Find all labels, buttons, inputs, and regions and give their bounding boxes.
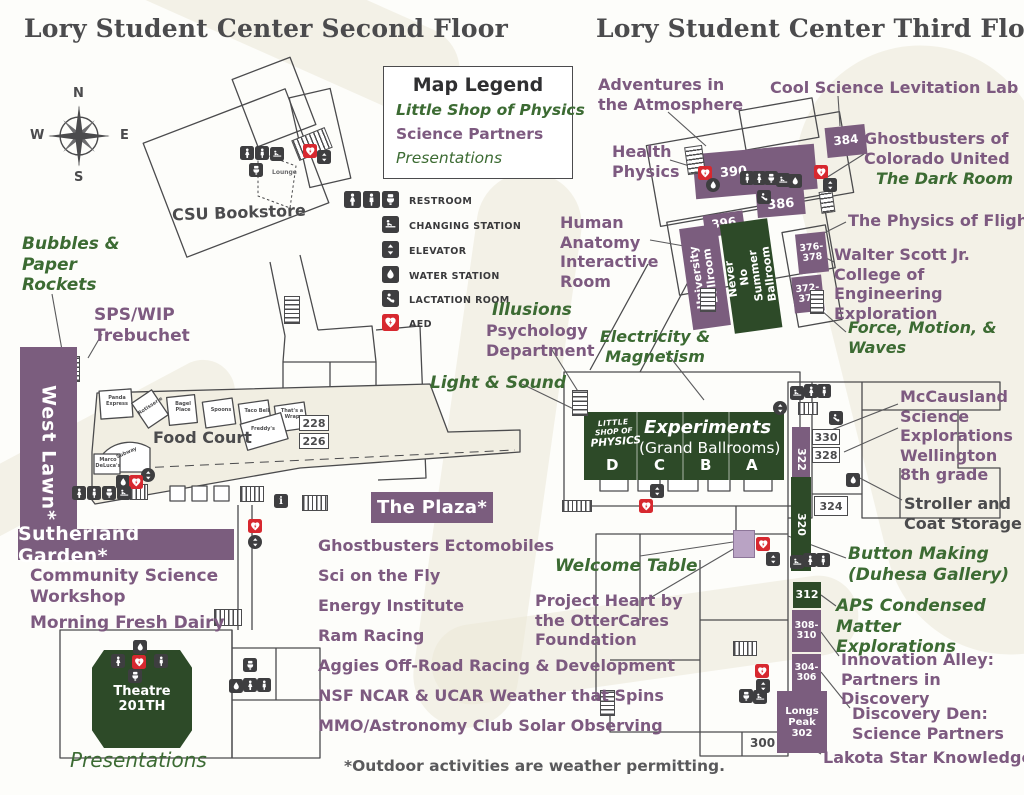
elevator-label: ELEVATOR bbox=[409, 246, 466, 257]
info-desk-icon: i bbox=[274, 494, 288, 508]
man-restroom-icon bbox=[817, 384, 831, 398]
compass-north: N bbox=[73, 86, 84, 101]
stall-thats-a-wrap: That's a Wrap bbox=[280, 409, 304, 421]
restroom-label: RESTROOM bbox=[409, 196, 472, 207]
changing-station-icon bbox=[117, 486, 131, 500]
ballroom-section-a: A bbox=[746, 456, 758, 474]
changing-station-icon bbox=[382, 216, 399, 233]
compass-star-icon bbox=[44, 101, 114, 171]
room-308-310-label: 308-310 bbox=[794, 621, 819, 642]
third-floor-title: Lory Student Center Third Floor bbox=[596, 14, 1024, 43]
elevator-icon bbox=[766, 552, 780, 566]
walter-scott-label: Walter Scott Jr. College of Engineering … bbox=[834, 245, 1024, 323]
welcome-table-block bbox=[733, 530, 755, 558]
mccausland-label: McCausland Science Explorations Wellingt… bbox=[900, 387, 1012, 485]
stairs bbox=[700, 288, 716, 312]
elevator-icon bbox=[650, 484, 664, 498]
second-floor-title: Lory Student Center Second Floor bbox=[24, 14, 508, 43]
lakota-star-label: Lakota Star Knowledge bbox=[823, 748, 1024, 768]
lactation-room-icon bbox=[829, 411, 843, 425]
stairs bbox=[819, 190, 836, 214]
stairs bbox=[284, 296, 300, 324]
water-station-icon bbox=[133, 640, 147, 654]
stall-taco-bell: Taco Bell bbox=[244, 409, 270, 415]
changing-station-icon bbox=[790, 386, 804, 400]
man-restroom-icon bbox=[816, 553, 830, 567]
discovery-den-label: Discovery Den: Science Partners bbox=[852, 704, 1012, 743]
activity-energy-institute: Energy Institute bbox=[318, 596, 464, 616]
ballroom-section-c: C bbox=[654, 456, 665, 474]
light-sound-label: Light & Sound bbox=[430, 373, 566, 394]
stairs bbox=[798, 402, 818, 415]
toilet-icon bbox=[249, 163, 263, 177]
room-330: 330 bbox=[812, 429, 840, 445]
legend-science-partners: Science Partners bbox=[396, 125, 543, 143]
theatre-201th-label: Theatre 201TH bbox=[111, 684, 173, 714]
grand-ballrooms: LITTLE SHOP OF PHYSICS Experiments (Gran… bbox=[584, 412, 784, 480]
psychology-department-label: Psychology Department bbox=[486, 321, 596, 360]
stall-marco-delucas: Marco DeLuca's bbox=[94, 458, 122, 470]
room-376-378-label: 376-378 bbox=[798, 241, 826, 264]
activity-ram-racing: Ram Racing bbox=[318, 626, 424, 646]
stairs bbox=[240, 486, 264, 502]
experiments-label: Experiments bbox=[644, 417, 771, 438]
man-restroom-icon bbox=[154, 654, 168, 668]
outdoor-footnote: *Outdoor activities are weather permitti… bbox=[344, 757, 725, 775]
room-320-label: 320 bbox=[795, 513, 807, 536]
woman-restroom-icon bbox=[804, 384, 818, 398]
elevator-icon bbox=[317, 150, 331, 164]
human-anatomy-label: Human Anatomy Interactive Room bbox=[560, 213, 658, 291]
toilet-icon bbox=[128, 669, 142, 683]
morning-fresh-dairy-label: Morning Fresh Dairy bbox=[30, 613, 225, 634]
legend-presentations: Presentations bbox=[396, 149, 502, 167]
sps-wip-trebuchet-label: SPS/WIP Trebuchet bbox=[94, 305, 209, 346]
woman-restroom-icon bbox=[240, 146, 254, 160]
room-376-378: 376-378 bbox=[795, 232, 829, 275]
longs-peak-302-label: Longs Peak 302 bbox=[784, 706, 820, 739]
room-324: 324 bbox=[814, 496, 848, 516]
elevator-icon bbox=[823, 178, 837, 192]
room-312: 312 bbox=[793, 582, 821, 608]
toilet-icon bbox=[102, 486, 116, 500]
lactation-room-icon bbox=[757, 190, 771, 204]
sutherland-garden-banner: Sutherland Garden* bbox=[18, 529, 234, 560]
stairs bbox=[562, 500, 592, 512]
water-station-icon bbox=[706, 178, 720, 192]
water-station-icon bbox=[846, 473, 860, 487]
water-station-icon bbox=[229, 679, 243, 693]
room-384-label: 384 bbox=[833, 133, 859, 149]
ballroom-section-d: D bbox=[606, 456, 618, 474]
elevator-icon bbox=[248, 535, 262, 549]
room-300-label: 300 bbox=[750, 736, 775, 750]
woman-restroom-icon bbox=[243, 678, 257, 692]
water-station-icon bbox=[788, 174, 802, 188]
room-longs-peak-302: Longs Peak 302 bbox=[777, 691, 827, 753]
room-324-label: 324 bbox=[820, 500, 843, 513]
room-312-label: 312 bbox=[796, 589, 819, 601]
toilet-icon bbox=[243, 658, 257, 672]
aed-icon bbox=[129, 475, 143, 489]
stairs bbox=[733, 641, 757, 656]
changing-station-icon bbox=[753, 690, 767, 704]
woman-restroom-icon bbox=[72, 486, 86, 500]
aed-icon bbox=[132, 655, 146, 669]
woman-restroom-icon bbox=[344, 191, 361, 208]
dark-room-label: The Dark Room bbox=[876, 169, 1013, 189]
community-science-workshop-label: Community Science Workshop bbox=[30, 566, 230, 607]
room-330-label: 330 bbox=[815, 431, 838, 444]
woman-restroom-icon bbox=[803, 553, 817, 567]
stroller-coat-storage-label: Stroller and Coat Storage bbox=[904, 494, 1024, 534]
woman-restroom-icon bbox=[111, 654, 125, 668]
legend-title: Map Legend bbox=[384, 74, 572, 96]
water-station-label: WATER STATION bbox=[409, 271, 500, 282]
stairs bbox=[572, 390, 588, 416]
activity-nsf-ncar-ucar: NSF NCAR & UCAR Weather that Spins bbox=[318, 686, 664, 706]
water-station-icon bbox=[382, 266, 399, 283]
activity-sci-on-the-fly: Sci on the Fly bbox=[318, 566, 440, 586]
compass-rose: N W E S bbox=[40, 86, 116, 186]
activity-mmo-astronomy: MMO/Astronomy Club Solar Observing bbox=[318, 716, 663, 736]
presentations-label: Presentations bbox=[70, 748, 207, 772]
room-304-306-label: 304-306 bbox=[794, 663, 819, 684]
elevator-icon bbox=[773, 401, 787, 415]
the-plaza-banner: The Plaza* bbox=[371, 492, 493, 523]
man-restroom-icon bbox=[363, 191, 380, 208]
man-restroom-icon bbox=[257, 678, 271, 692]
compass-south: S bbox=[74, 170, 83, 185]
changing-station-label: CHANGING STATION bbox=[409, 221, 521, 232]
health-physics-label: Health Physics bbox=[612, 142, 682, 181]
food-court-label: Food Court bbox=[153, 428, 252, 447]
activity-ghostbusters-ectomobiles: Ghostbusters Ectomobiles bbox=[318, 536, 554, 556]
adventures-atmosphere-label: Adventures in the Atmosphere bbox=[598, 75, 748, 114]
innovation-alley-label: Innovation Alley: Partners in Discovery bbox=[841, 650, 1016, 709]
stairs bbox=[810, 290, 824, 314]
room-328-label: 328 bbox=[815, 449, 838, 462]
room-328: 328 bbox=[812, 447, 840, 463]
aed-icon bbox=[814, 165, 828, 179]
welcome-table-label: Welcome Table bbox=[555, 556, 698, 577]
changing-station-icon bbox=[270, 147, 284, 161]
elevator-icon bbox=[382, 241, 399, 258]
button-making-label: Button Making (Duhesa Gallery) bbox=[848, 544, 1018, 585]
stall-freddys: Freddy's bbox=[248, 427, 278, 433]
room-226: 226 bbox=[299, 433, 329, 449]
the-plaza-label: The Plaza* bbox=[377, 497, 487, 518]
changing-station-icon bbox=[790, 555, 804, 569]
aed-label: AED bbox=[409, 319, 432, 330]
project-heart-label: Project Heart by the OtterCares Foundati… bbox=[535, 591, 715, 650]
aed-icon bbox=[755, 664, 769, 678]
little-shop-of-physics-logo: LITTLE SHOP OF PHYSICS bbox=[589, 417, 639, 450]
room-226-label: 226 bbox=[303, 435, 326, 448]
electricity-magnetism-label: Electricity & Magnetism bbox=[598, 327, 712, 366]
room-322-label: 322 bbox=[795, 448, 807, 471]
toilet-icon bbox=[382, 191, 399, 208]
never-no-summer-label: Never No Summer Ballroom bbox=[722, 245, 780, 307]
ghostbusters-colorado-label: Ghostbusters of Colorado United bbox=[864, 129, 1024, 168]
aed-icon bbox=[382, 314, 399, 331]
room-384: 384 bbox=[825, 124, 868, 158]
toilet-icon bbox=[739, 689, 753, 703]
grand-ballrooms-label: (Grand Ballrooms) bbox=[639, 439, 780, 457]
sutherland-garden-label: Sutherland Garden* bbox=[18, 523, 234, 567]
man-restroom-icon bbox=[87, 486, 101, 500]
stall-panda-express: Panda Express bbox=[103, 396, 131, 408]
aed-icon bbox=[303, 144, 317, 158]
lounge-label: Lounge bbox=[272, 170, 297, 177]
bubbles-paper-rockets-label: Bubbles & Paper Rockets bbox=[22, 234, 122, 296]
lactation-room-icon bbox=[382, 290, 399, 307]
map-legend: Map Legend Little Shop of Physics Scienc… bbox=[383, 66, 573, 179]
floor-map: N W E S Lory Student Center Second Floor… bbox=[0, 0, 1024, 795]
west-lawn-label: West Lawn* bbox=[38, 385, 60, 521]
logo-line3: PHYSICS bbox=[590, 435, 639, 450]
physics-of-flight-label: The Physics of Flight bbox=[848, 211, 1024, 231]
aed-icon bbox=[248, 519, 262, 533]
legend-little-shop-of-physics: Little Shop of Physics bbox=[396, 101, 585, 119]
man-restroom-icon bbox=[255, 146, 269, 160]
stall-bagel-place: Bagel Place bbox=[172, 402, 194, 414]
aed-icon bbox=[639, 499, 653, 513]
compass-west: W bbox=[30, 128, 44, 143]
elevator-icon bbox=[141, 468, 155, 482]
cool-science-levitation-label: Cool Science Levitation Lab bbox=[770, 78, 1018, 98]
force-motion-waves-label: Force, Motion, & Waves bbox=[848, 318, 998, 357]
compass-east: E bbox=[120, 128, 129, 143]
activity-aggies-off-road: Aggies Off-Road Racing & Development bbox=[318, 656, 675, 676]
room-308-310: 308-310 bbox=[792, 610, 821, 652]
stairs bbox=[302, 495, 328, 511]
stall-spoons: Spoons bbox=[208, 408, 234, 414]
aps-condensed-label: APS Condensed Matter Explorations bbox=[836, 596, 1024, 658]
room-304-306: 304-306 bbox=[792, 654, 821, 692]
illusions-label: Illusions bbox=[492, 300, 572, 321]
ballroom-section-b: B bbox=[700, 456, 711, 474]
room-228-label: 228 bbox=[303, 417, 326, 430]
aed-icon bbox=[756, 537, 770, 551]
